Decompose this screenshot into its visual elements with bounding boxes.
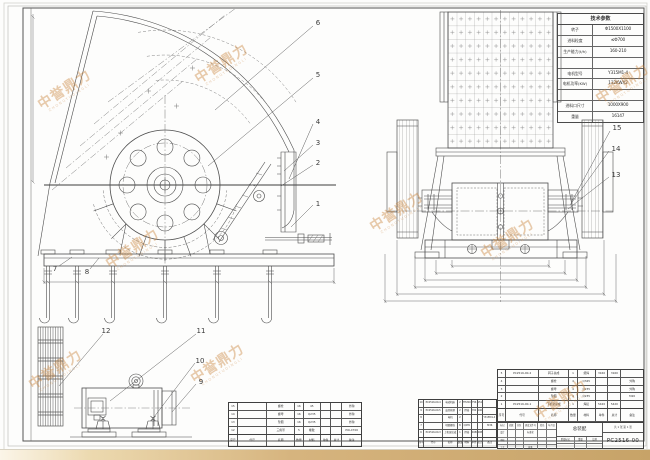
bom-name: 电动机座 [443, 400, 458, 407]
bom-header-unit-weight: 单件 [321, 435, 332, 446]
bom-header-name: 名称 [443, 438, 458, 447]
bom-unit-weight [596, 386, 609, 393]
part-callout-number: 11 [197, 327, 206, 335]
parameter-row: 进料粒度 ≤Φ700 [558, 36, 643, 47]
revision-header-row: 标记 处数 分区 更改文件号 签名 年月日 [498, 423, 556, 431]
bom-code [238, 411, 268, 418]
bom-total-weight [608, 386, 621, 393]
bom-header-row: 序号 代号 名称 数量 材料 单件 总计 备注 [229, 434, 361, 446]
bom-name: 电机 [443, 415, 458, 422]
bom-material: 焊接 [578, 401, 596, 408]
bom-material: 组焊 [578, 370, 596, 377]
table-row: 13 垫圈 16 Q235 外购 [229, 419, 361, 427]
bom-code [424, 423, 443, 430]
bom-header-row: 序号 代号 名称 数量 材料 单件 总计 备注 [498, 408, 643, 422]
signature-row: 设计 标准化 [498, 430, 556, 438]
bom-header-code: 代号 [238, 435, 268, 446]
bom-no: 4 [498, 378, 506, 385]
bom-left-body: 15 螺栓 16 45 外购 14 螺母 16 Q235 外购 13 [229, 403, 361, 434]
part-callout-number: 12 [102, 327, 111, 335]
bom-unit-weight [321, 419, 332, 426]
parameter-label: 进料口尺寸 [558, 101, 593, 111]
bom-name: 螺栓 [267, 403, 295, 410]
bom-qty: 16 [295, 403, 304, 410]
parameter-label: 电机功率(KW) [558, 79, 593, 89]
parameter-row: 转子 Φ1500X1100 [558, 25, 643, 36]
bom-note [621, 370, 643, 377]
bom-note: 外购 [342, 411, 361, 418]
bom-name: 螺母 [267, 411, 295, 418]
bom-name: 螺栓 [539, 378, 569, 385]
photo-edge-strip [0, 449, 650, 460]
part-callout-number: 1 [316, 200, 320, 208]
bom-material: 45 [304, 403, 321, 410]
empty-cell [547, 430, 556, 437]
parameter-label: 转子 [558, 25, 593, 35]
part-callout-number: 5 [316, 71, 320, 79]
bom-note: 外购 [621, 386, 643, 393]
bom-qty: 5 [295, 427, 304, 434]
title-block: 标记 处数 分区 更改文件号 签名 年月日 设计 标准化 审核 [498, 422, 643, 448]
bom-note: 外购 [621, 378, 643, 385]
bom-no: 13 [229, 419, 238, 426]
bom-table-middle: 10 PC2516-00-4 电动机座 2 HT200 756 1512 9 P… [418, 399, 497, 448]
table-row: 8 电机 2 Y315M1-4 132KW [419, 415, 496, 423]
rev-docno-label: 更改文件号 [524, 423, 539, 430]
drawing-title: 总装配 [557, 423, 602, 437]
table-row: 5 PC2516-00-2 转子总成 1 组焊 3160 3160 [498, 370, 643, 378]
parameter-row [558, 58, 643, 69]
bom-header-note: 备注 [621, 409, 643, 421]
part-callout-number: 6 [316, 19, 320, 27]
bom-no: 1 [498, 401, 506, 408]
bom-name: 皮带轮罩 [443, 408, 458, 415]
bom-header-material: 材料 [578, 409, 596, 421]
bom-unit-weight [321, 403, 332, 410]
parameter-value: 160-210 [593, 47, 643, 57]
bom-mid-body: 10 PC2516-00-4 电动机座 2 HT200 756 1512 9 P… [419, 400, 496, 437]
empty-cell [508, 438, 516, 445]
motor-detail-drawing [70, 374, 192, 437]
sheet-count-note: 共 1 张 第 1 张 [603, 423, 643, 433]
bom-no: 14 [229, 411, 238, 418]
bom-note [483, 408, 496, 415]
bom-note [483, 400, 496, 407]
bom-header-note: 备注 [342, 435, 361, 446]
parameter-label [558, 90, 593, 100]
bom-name: 地脚螺栓 [443, 423, 458, 430]
bom-qty: 16 [295, 411, 304, 418]
bom-total-weight [331, 419, 342, 426]
drawing-number: PC2516-00 [603, 433, 643, 450]
bom-note: 外购 [342, 403, 361, 410]
parameter-value: Φ1500X1100 [593, 25, 643, 35]
parameter-value: 16147 [593, 112, 643, 122]
bom-material: HT200 [463, 400, 472, 407]
bom-no: 5 [498, 370, 506, 377]
bom-material: Q235 [304, 419, 321, 426]
title-block-name-zone: 总装配 阶段标记 重量 比例 [557, 423, 603, 448]
weight-label: 重量 [575, 437, 588, 444]
parameter-label: 电机型号 [558, 69, 593, 79]
bom-total-weight [608, 378, 621, 385]
bom-table-left: 15 螺栓 16 45 外购 14 螺母 16 Q235 外购 13 [228, 402, 362, 447]
table-row: 7 地脚螺栓 8 Q235 M36 [419, 423, 496, 431]
empty-cell [516, 438, 524, 445]
bom-no: 3 [498, 386, 506, 393]
empty-cell [538, 430, 547, 437]
table-row: 6 PC2516-00-3 上机架总成 1 焊接 4080 4080 [419, 430, 496, 437]
parameters-table-title: 技术参数 [558, 14, 643, 25]
part-callout-number: 4 [316, 118, 320, 126]
empty-cell [538, 438, 547, 445]
bom-code [506, 378, 540, 385]
rev-date-label: 年月日 [547, 423, 556, 430]
signature-row: 审核 [498, 438, 556, 446]
bom-header-total-weight: 总计 [608, 409, 621, 421]
bom-code: PC2516-00-3 [424, 430, 443, 437]
bom-material: Q235 [304, 411, 321, 418]
bom-no: 12 [229, 427, 238, 434]
bom-material: Q235 [463, 423, 472, 430]
bom-header-qty: 数量 [295, 435, 304, 446]
bom-code [238, 403, 268, 410]
bom-unit-weight [596, 393, 609, 400]
parameter-value: ≤Φ700 [593, 36, 643, 46]
parameter-label: 进料粒度 [558, 36, 593, 46]
bom-code: PC2516-00-4 [424, 400, 443, 407]
bom-note [621, 401, 643, 408]
bom-header-unit-weight: 单件 [596, 409, 609, 421]
bom-header-material: 材料 [304, 435, 321, 446]
bom-note: M36 [483, 423, 496, 430]
bom-header-code: 代号 [424, 438, 443, 447]
bom-unit-weight [321, 427, 332, 434]
parameter-label: 生产能力(t/h) [558, 47, 593, 57]
check-label: 审核 [498, 438, 508, 445]
part-callout-number: 10 [196, 357, 205, 365]
bom-header-no: 序号 [498, 409, 506, 421]
empty-cell [524, 438, 539, 445]
bom-material [463, 415, 472, 422]
title-block-number-zone: 共 1 张 第 1 张 PC2516-00 [603, 423, 643, 448]
bom-header-qty: 数量 [569, 409, 578, 421]
bom-qty: 16 [295, 419, 304, 426]
bom-name: 三角带 [267, 427, 295, 434]
bom-unit-weight [596, 378, 609, 385]
part-callout-number: 15 [613, 124, 622, 132]
bom-header-row: 序号 代号 名称 数量 材料 单件 总计 备注 [419, 437, 496, 447]
engineering-drawing-sheet: 技术参数 转子 Φ1500X1100 进料粒度 ≤Φ700 生产能力(t/h) … [0, 0, 650, 460]
empty-cell [516, 430, 524, 437]
bom-total-weight [331, 427, 342, 434]
rev-zone-label: 分区 [516, 423, 524, 430]
scale-label: 比例 [587, 437, 602, 444]
bom-name: 垫圈 [267, 419, 295, 426]
bom-unit-weight: 3160 [596, 370, 609, 377]
rev-mark-label: 标记 [498, 423, 508, 430]
bom-material: 橡胶 [304, 427, 321, 434]
bom-table-right: 5 PC2516-00-2 转子总成 1 组焊 3160 3160 4 螺栓 4… [497, 369, 644, 449]
bom-header-no: 序号 [229, 435, 238, 446]
bom-total-weight [331, 403, 342, 410]
standardization-label: 标准化 [524, 430, 539, 437]
bom-code [506, 386, 540, 393]
bom-unit-weight: 5420 [596, 401, 609, 408]
bom-code [506, 393, 540, 400]
parameter-label: 重量 [558, 112, 593, 122]
bom-code: PC2516-00-2 [506, 370, 540, 377]
table-row: 15 螺栓 16 45 外购 [229, 403, 361, 411]
bom-no: 15 [229, 403, 238, 410]
empty-cell [508, 430, 516, 437]
parameter-row: 生产能力(t/h) 160-210 [558, 47, 643, 58]
part-callout-number: 13 [612, 171, 621, 179]
part-callout-number: 14 [612, 145, 621, 153]
bom-header-material: 材料 [463, 438, 472, 447]
empty-cell [547, 438, 556, 445]
bom-name: 上机架总成 [443, 430, 458, 437]
part-callout-number: 3 [316, 139, 320, 147]
bom-header-name: 名称 [267, 435, 295, 446]
bom-code [238, 419, 268, 426]
bom-header-note: 备注 [483, 438, 496, 447]
table-row: 10 PC2516-00-4 电动机座 2 HT200 756 1512 [419, 400, 496, 408]
bom-name: 转子总成 [539, 370, 569, 377]
bom-total-weight: 3160 [608, 370, 621, 377]
table-row: 14 螺母 16 Q235 外购 [229, 411, 361, 419]
bom-total-weight [331, 411, 342, 418]
rev-count-label: 处数 [508, 423, 516, 430]
bom-unit-weight [321, 411, 332, 418]
part-callout-number: 7 [53, 265, 57, 273]
bom-total-weight: 5420 [608, 401, 621, 408]
design-label: 设计 [498, 430, 508, 437]
parameter-label [558, 58, 593, 68]
bom-header-total-weight: 总计 [331, 435, 342, 446]
bom-note: M20 [621, 393, 643, 400]
table-row: 9 PC2516-00-5 皮带轮罩 2 焊接 702 1404 [419, 408, 496, 416]
bom-note: 外购 [342, 419, 361, 426]
bom-note: POLX700 [342, 427, 361, 434]
parameter-row: 重量 16147 [558, 112, 643, 122]
title-block-signature-zone: 标记 处数 分区 更改文件号 签名 年月日 设计 标准化 审核 [498, 423, 557, 448]
bom-code [238, 427, 268, 434]
bom-code: PC2516-00-5 [424, 408, 443, 415]
part-callout-number: 2 [316, 159, 320, 167]
bom-total-weight [608, 393, 621, 400]
bom-no: 2 [498, 393, 506, 400]
bom-material: 焊接 [463, 408, 472, 415]
stage-mark-label: 阶段标记 [557, 437, 575, 444]
part-callout-number: 8 [85, 268, 89, 276]
bom-qty: 1 [569, 370, 578, 377]
bom-note [483, 430, 496, 437]
bom-note: Y315M1-4 132KW [483, 415, 496, 422]
bom-code [424, 415, 443, 422]
table-row: 12 三角带 5 橡胶 POLX700 [229, 427, 361, 434]
part-callout-number: 9 [199, 378, 203, 386]
stage-header-row: 阶段标记 重量 比例 [557, 437, 602, 445]
bom-material: 焊接 [463, 430, 472, 437]
